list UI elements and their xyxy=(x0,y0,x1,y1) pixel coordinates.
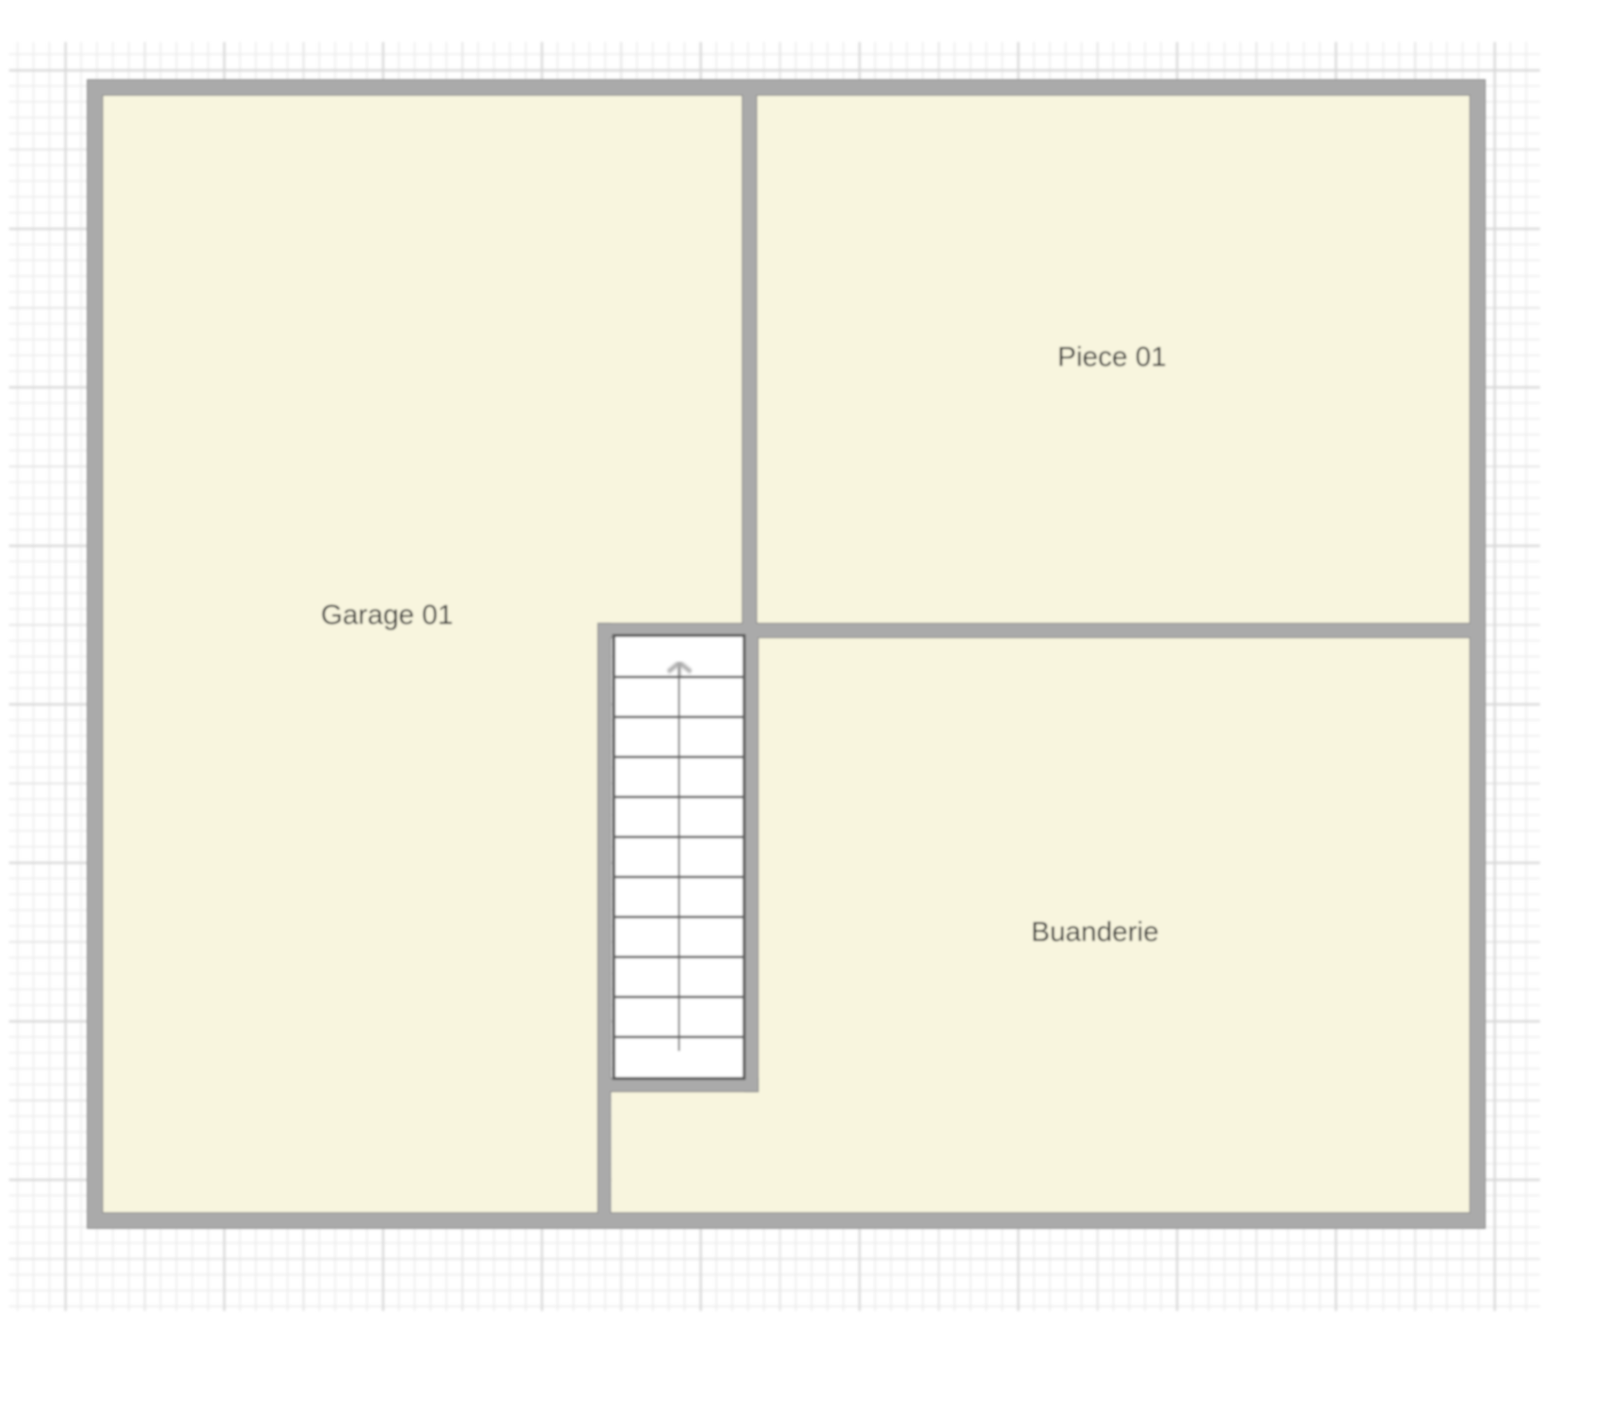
svg-text:Piece 01: Piece 01 xyxy=(1058,341,1167,372)
svg-text:Buanderie: Buanderie xyxy=(1031,916,1159,947)
svg-text:Garage 01: Garage 01 xyxy=(321,599,453,630)
